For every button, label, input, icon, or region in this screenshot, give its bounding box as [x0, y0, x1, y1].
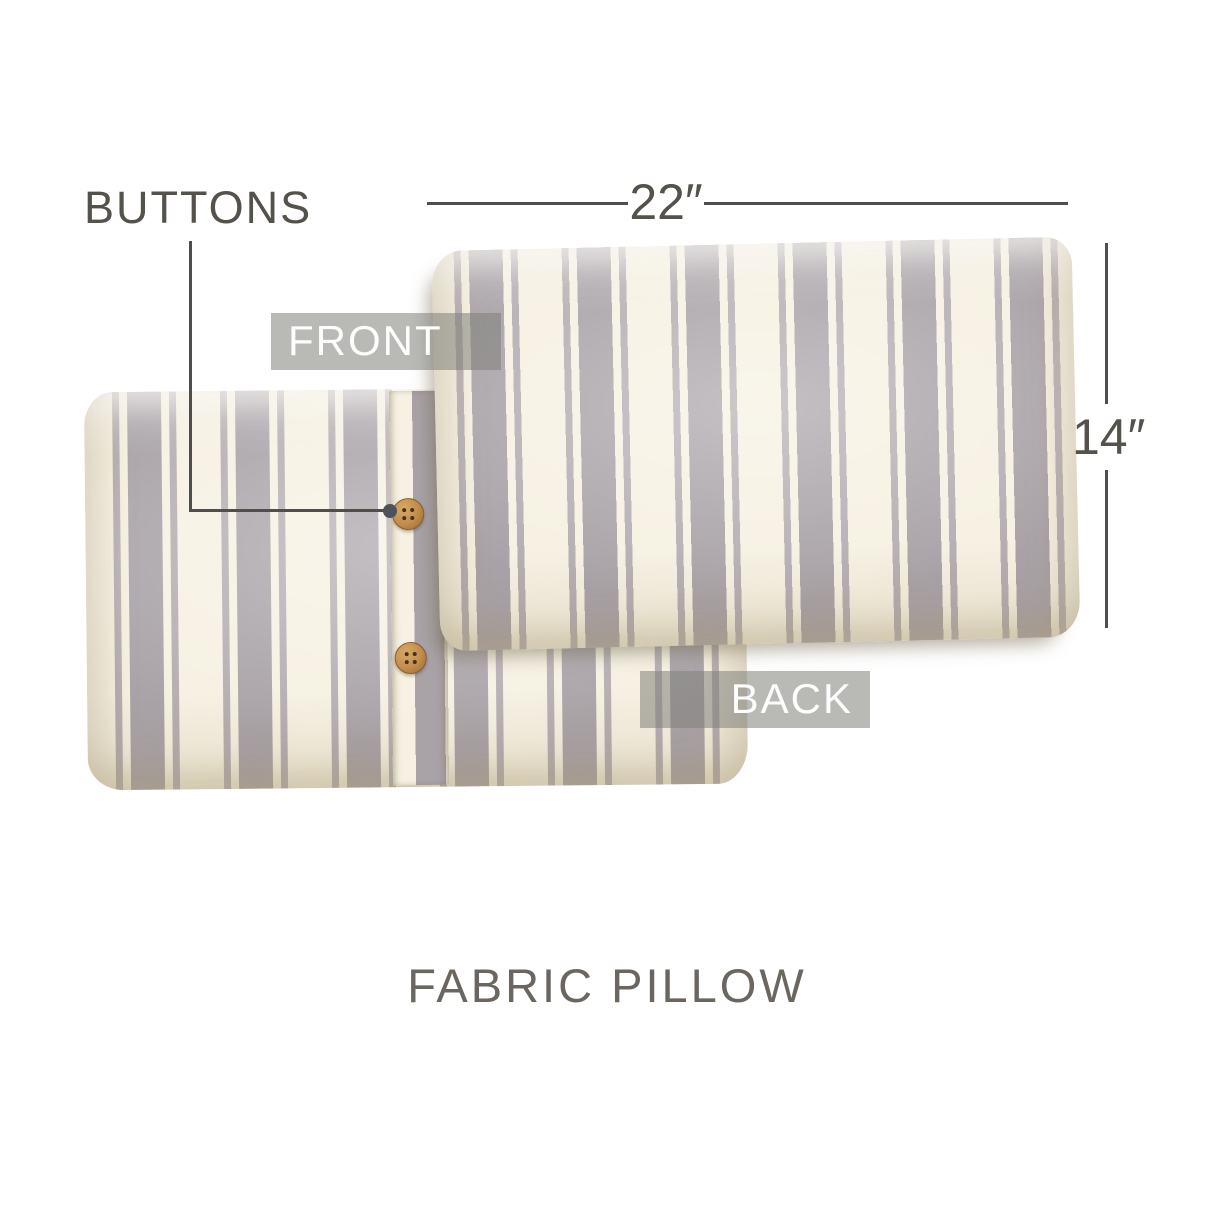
back-tag: BACK	[640, 671, 870, 728]
height-dimension: 14″	[1072, 243, 1144, 629]
buttons-leader-line-horizontal	[189, 509, 387, 512]
buttons-label: BUTTONS	[84, 182, 312, 234]
buttons-leader-line-vertical	[189, 241, 192, 510]
wood-button-top	[392, 498, 424, 530]
front-tag: FRONT	[271, 313, 501, 370]
product-title: FABRIC PILLOW	[0, 958, 1214, 1013]
height-dim-line-top	[1105, 243, 1108, 404]
pillow-front-view	[432, 237, 1081, 651]
buttons-leader-dot	[383, 504, 397, 518]
product-diagram: BUTTONS FRONT BACK 22″ 14″ FABRIC PILLOW	[0, 0, 1214, 1214]
width-dim-line-right	[704, 202, 1068, 205]
width-dim-value: 22″	[628, 173, 704, 231]
height-dim-value: 14″	[1072, 408, 1144, 466]
wood-button-bottom	[395, 642, 427, 674]
width-dim-line-left	[427, 202, 628, 205]
width-dimension: 22″	[427, 173, 1068, 235]
height-dim-line-bottom	[1105, 470, 1108, 628]
